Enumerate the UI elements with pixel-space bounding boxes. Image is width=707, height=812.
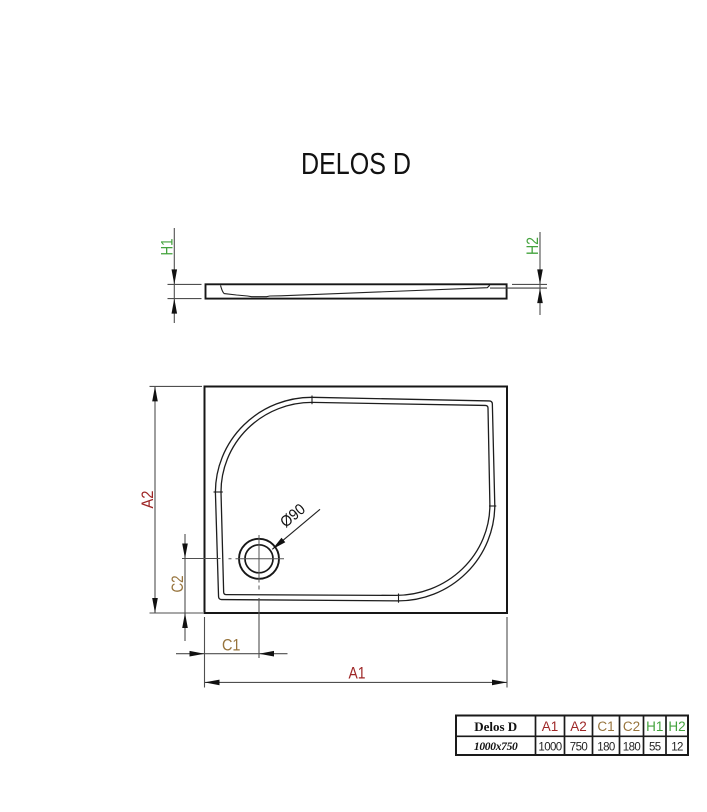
svg-text:Delos D: Delos D bbox=[474, 719, 517, 734]
svg-text:C2: C2 bbox=[623, 719, 640, 734]
svg-text:1000: 1000 bbox=[538, 741, 561, 753]
svg-text:A2: A2 bbox=[570, 719, 587, 734]
svg-text:55: 55 bbox=[649, 741, 661, 753]
svg-text:750: 750 bbox=[570, 741, 588, 753]
svg-text:12: 12 bbox=[671, 741, 683, 753]
svg-text:DELOS D: DELOS D bbox=[301, 147, 411, 181]
svg-text:C2: C2 bbox=[168, 576, 187, 593]
svg-text:H2: H2 bbox=[668, 719, 685, 734]
svg-text:H1: H1 bbox=[646, 719, 663, 734]
svg-text:H1: H1 bbox=[158, 239, 177, 256]
svg-text:A1: A1 bbox=[542, 719, 559, 734]
svg-text:H2: H2 bbox=[523, 237, 542, 255]
svg-text:C1: C1 bbox=[597, 719, 614, 734]
svg-text:C1: C1 bbox=[222, 635, 241, 654]
svg-text:A2: A2 bbox=[138, 491, 157, 509]
svg-text:180: 180 bbox=[623, 741, 641, 753]
svg-text:180: 180 bbox=[597, 741, 615, 753]
svg-text:1000x750: 1000x750 bbox=[474, 741, 518, 753]
svg-text:A1: A1 bbox=[349, 664, 366, 683]
